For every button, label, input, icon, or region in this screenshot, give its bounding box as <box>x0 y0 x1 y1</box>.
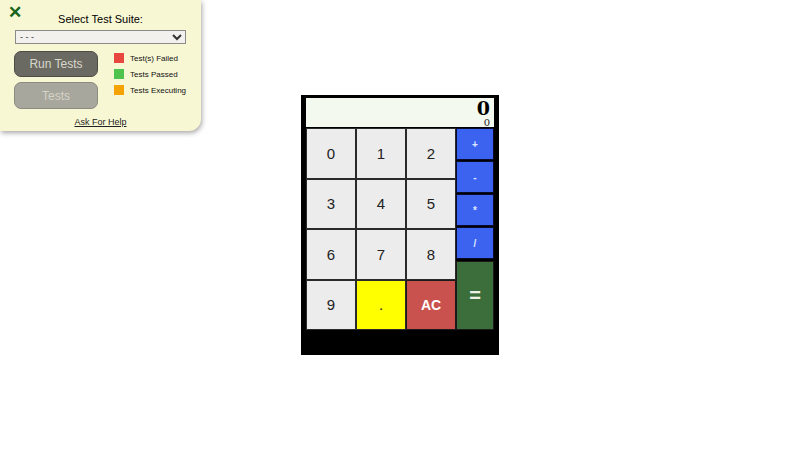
legend-item-executing: Tests Executing <box>114 85 186 95</box>
test-legend: Test(s) Failed Tests Passed Tests Execut… <box>114 51 186 109</box>
test-suite-select[interactable]: - - - <box>15 30 186 44</box>
calculator-keypad: 0 1 2 3 4 5 6 7 8 9 . AC + - * / = <box>306 128 494 330</box>
divide-button[interactable]: / <box>456 227 494 259</box>
display-primary-value: 0 <box>306 99 490 118</box>
digit-6-button[interactable]: 6 <box>306 229 356 280</box>
panel-buttons: Run Tests Tests <box>14 51 98 109</box>
digit-2-button[interactable]: 2 <box>406 128 456 179</box>
ask-for-help-link[interactable]: Ask For Help <box>74 117 126 127</box>
clear-button[interactable]: AC <box>406 280 456 331</box>
legend-label: Tests Executing <box>130 86 186 95</box>
decimal-button[interactable]: . <box>356 280 406 331</box>
test-suite-title: Select Test Suite: <box>0 0 201 25</box>
subtract-button[interactable]: - <box>456 161 494 193</box>
digit-grid: 0 1 2 3 4 5 6 7 8 9 . AC <box>306 128 456 330</box>
digit-4-button[interactable]: 4 <box>356 179 406 230</box>
passed-swatch-icon <box>114 69 124 79</box>
failed-swatch-icon <box>114 53 124 63</box>
multiply-button[interactable]: * <box>456 194 494 226</box>
panel-body: Run Tests Tests Test(s) Failed Tests Pas… <box>0 51 201 109</box>
digit-3-button[interactable]: 3 <box>306 179 356 230</box>
operator-column: + - * / = <box>456 128 494 330</box>
tests-button[interactable]: Tests <box>14 82 98 109</box>
close-icon[interactable]: ✕ <box>8 3 22 23</box>
legend-item-failed: Test(s) Failed <box>114 53 186 63</box>
run-tests-button[interactable]: Run Tests <box>14 51 98 77</box>
display-secondary-value: 0 <box>306 118 490 127</box>
digit-9-button[interactable]: 9 <box>306 280 356 331</box>
equals-button[interactable]: = <box>456 261 494 330</box>
add-button[interactable]: + <box>456 128 494 160</box>
help-link-wrap: Ask For Help <box>0 111 201 129</box>
digit-0-button[interactable]: 0 <box>306 128 356 179</box>
digit-8-button[interactable]: 8 <box>406 229 456 280</box>
digit-1-button[interactable]: 1 <box>356 128 406 179</box>
calculator: 0 0 0 1 2 3 4 5 6 7 8 9 . AC + - * / = <box>301 95 499 355</box>
test-suite-panel: ✕ Select Test Suite: - - - Run Tests Tes… <box>0 0 201 131</box>
digit-5-button[interactable]: 5 <box>406 179 456 230</box>
calculator-display: 0 0 <box>306 98 494 127</box>
legend-label: Test(s) Failed <box>130 54 178 63</box>
legend-label: Tests Passed <box>130 70 178 79</box>
executing-swatch-icon <box>114 85 124 95</box>
legend-item-passed: Tests Passed <box>114 69 186 79</box>
digit-7-button[interactable]: 7 <box>356 229 406 280</box>
